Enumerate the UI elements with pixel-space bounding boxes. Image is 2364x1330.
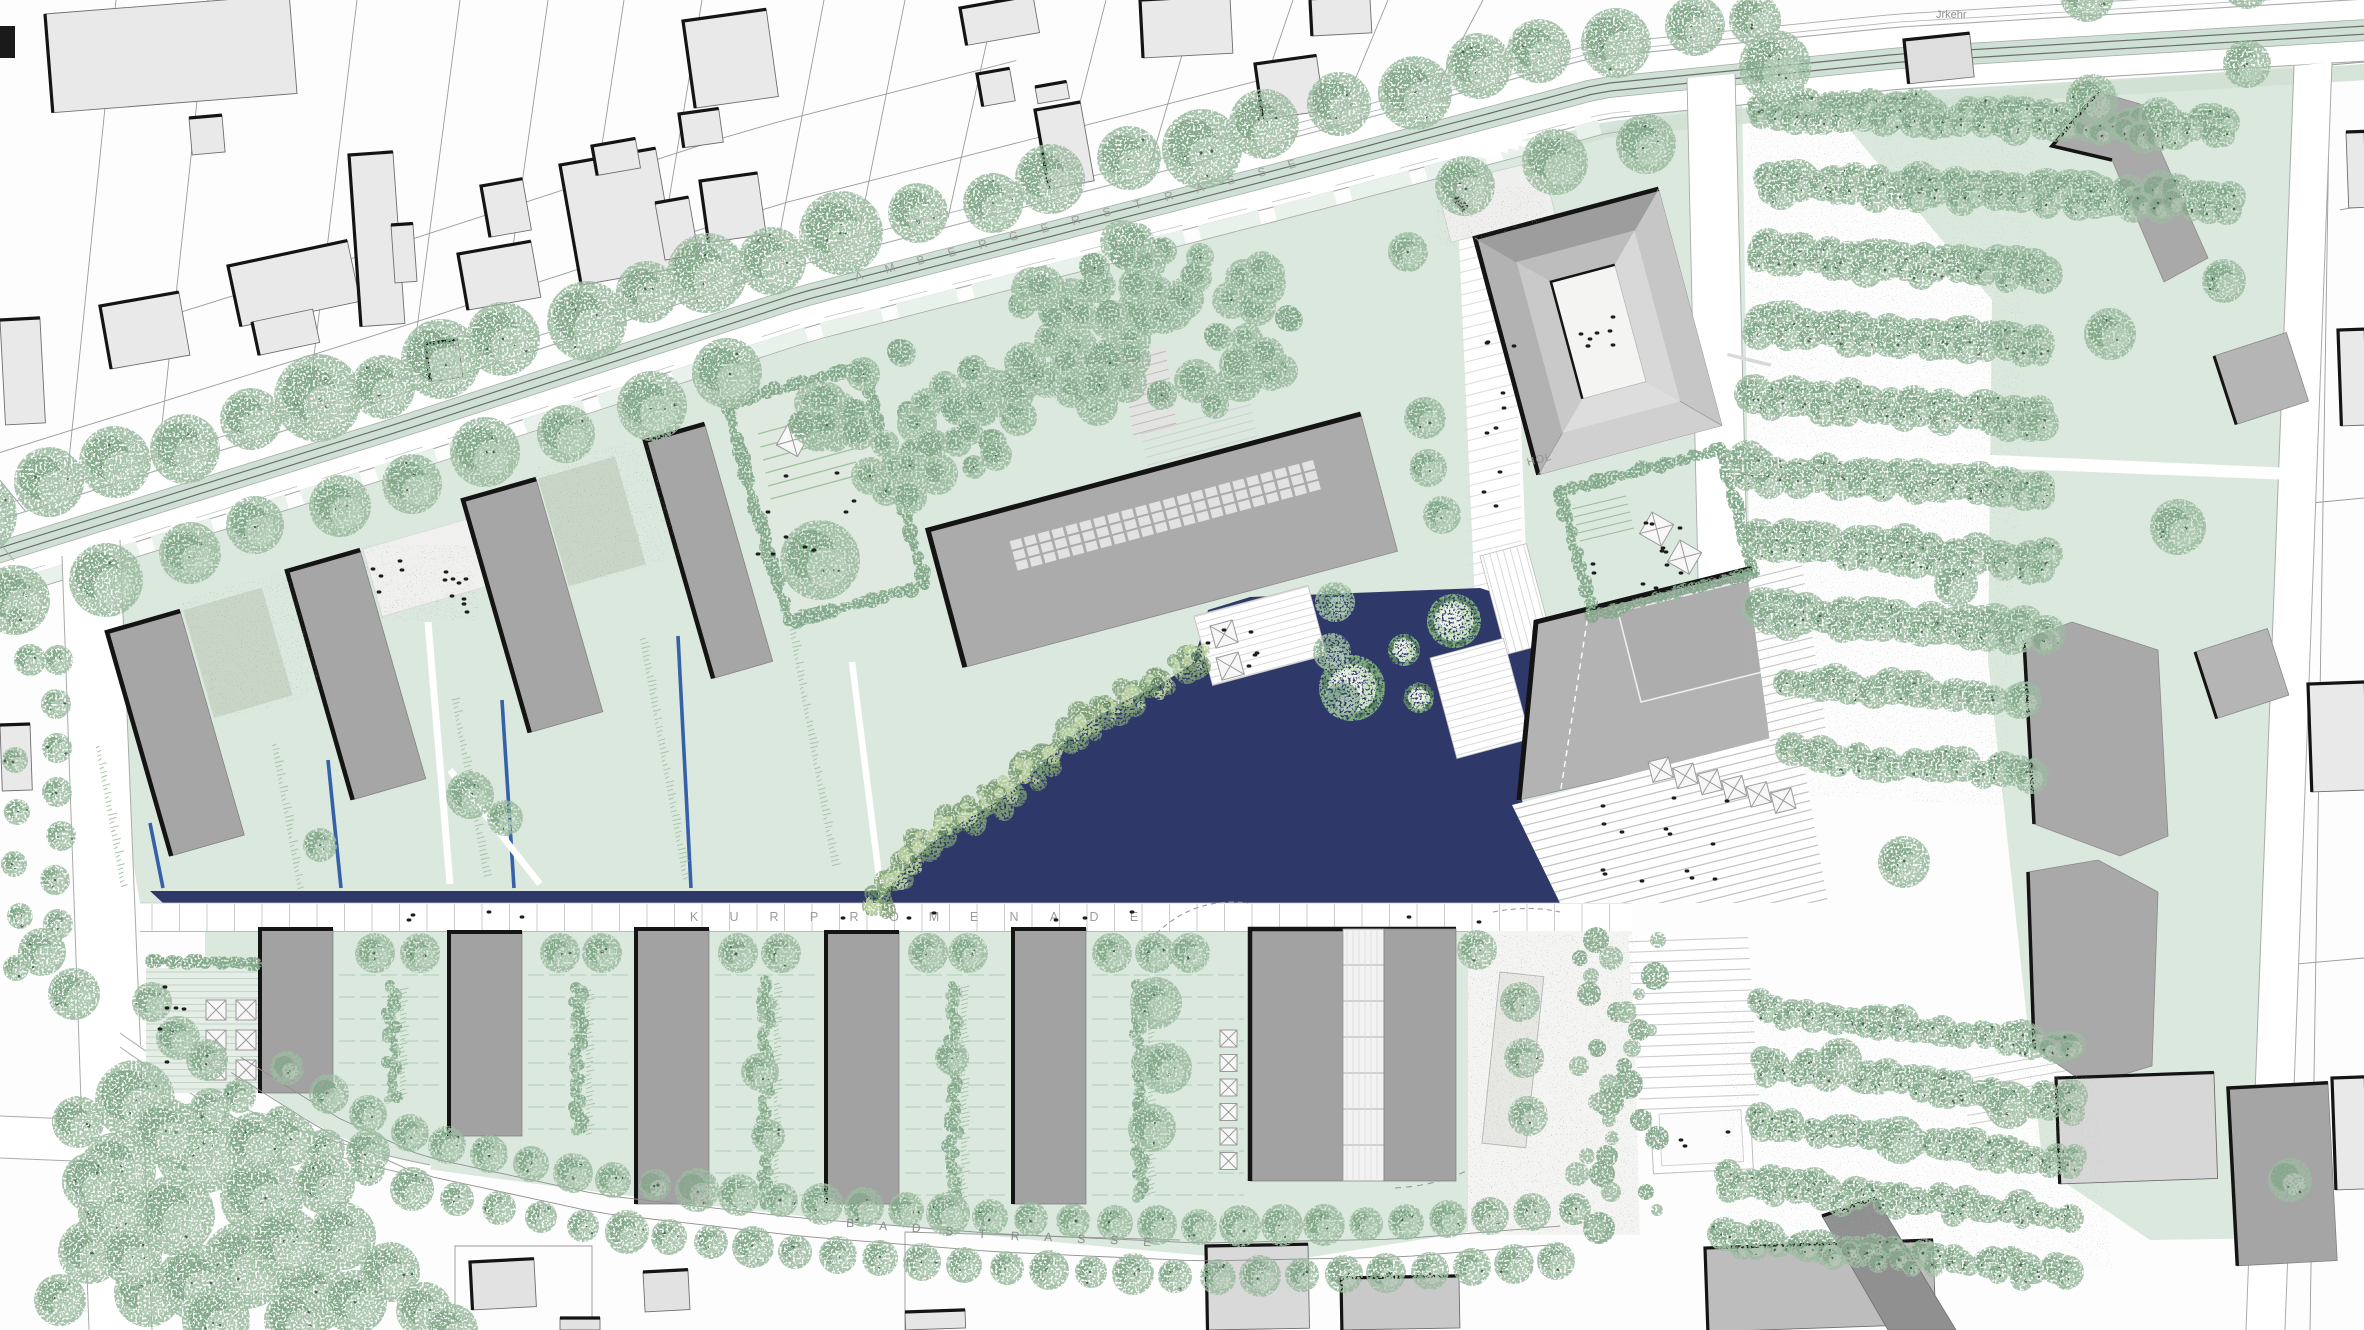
svg-text:R: R xyxy=(769,910,778,924)
svg-text:E: E xyxy=(970,910,978,924)
svg-text:D: D xyxy=(1089,910,1098,924)
svg-text:P: P xyxy=(810,910,818,924)
svg-text:K: K xyxy=(690,910,699,924)
svg-text:R: R xyxy=(849,910,858,924)
svg-text:A: A xyxy=(1050,910,1059,924)
svg-text:U: U xyxy=(729,910,738,924)
svg-text:N: N xyxy=(1009,910,1018,924)
